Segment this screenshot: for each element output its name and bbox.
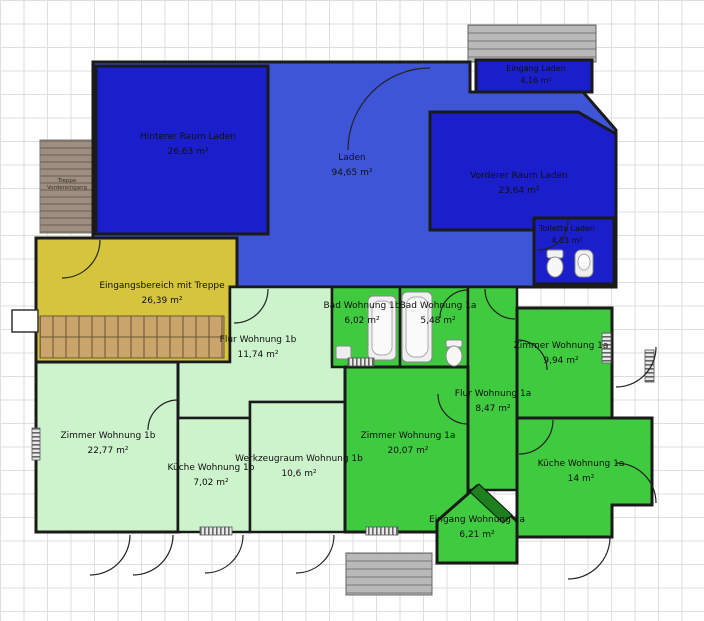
room-eingang-laden[interactable] bbox=[476, 60, 592, 92]
room-hinterer-raum-laden[interactable] bbox=[96, 66, 268, 234]
room-vorderer-raum-laden[interactable] bbox=[430, 112, 616, 230]
radiator-icon[interactable] bbox=[32, 428, 40, 460]
toilet-icon[interactable] bbox=[446, 340, 462, 366]
room-zimmer-wohnung-1b[interactable] bbox=[36, 362, 178, 532]
stairs-vordereingang[interactable] bbox=[40, 140, 95, 233]
bathtub-icon[interactable] bbox=[402, 292, 432, 362]
floor-plan-canvas[interactable]: Hinterer Raum Laden26,63 m² Laden94,65 m… bbox=[0, 0, 704, 621]
room-zimmer-wohnung-1a-klein[interactable] bbox=[517, 308, 612, 418]
floor-plan-drawing bbox=[0, 0, 704, 621]
room-zimmer-wohnung-1a-gross[interactable] bbox=[345, 367, 468, 532]
sink-icon[interactable] bbox=[336, 346, 351, 359]
radiator-icon[interactable] bbox=[200, 527, 232, 535]
room-flur-wohnung-1a[interactable] bbox=[468, 287, 517, 490]
radiator-icon[interactable] bbox=[602, 333, 611, 363]
entrance-step bbox=[12, 310, 38, 332]
room-toilette-laden[interactable] bbox=[534, 218, 614, 284]
room-werkzeugraum-wohnung-1b[interactable] bbox=[250, 402, 345, 532]
outdoor-stairs-bottom[interactable] bbox=[346, 553, 432, 595]
radiator-icon[interactable] bbox=[366, 527, 398, 535]
room-kueche-wohnung-1b[interactable] bbox=[178, 418, 250, 532]
bathtub-icon[interactable] bbox=[368, 296, 396, 360]
radiator-icon[interactable] bbox=[645, 350, 654, 382]
room-kueche-wohnung-1a[interactable] bbox=[517, 418, 652, 537]
toilet-icon[interactable] bbox=[547, 250, 563, 277]
radiator-icon[interactable] bbox=[348, 358, 374, 366]
washbasin-icon[interactable] bbox=[575, 250, 593, 277]
outdoor-stairs-top[interactable] bbox=[468, 25, 596, 62]
